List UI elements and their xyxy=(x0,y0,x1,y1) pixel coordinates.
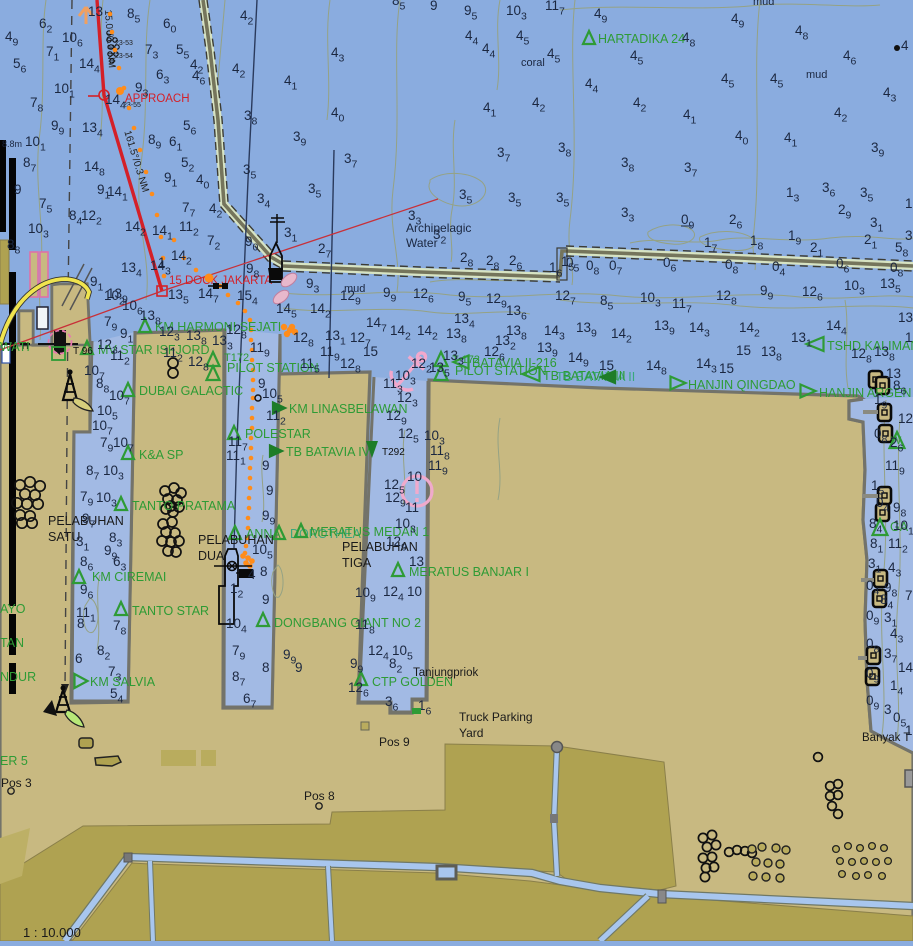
svg-text:KM SALVIA: KM SALVIA xyxy=(90,675,156,689)
svg-text:Yard: Yard xyxy=(459,726,483,740)
svg-text:coral: coral xyxy=(521,57,545,69)
svg-text:1: 1 xyxy=(905,196,913,211)
svg-text:3: 3 xyxy=(884,702,892,717)
svg-text:TANTO PRATAMA: TANTO PRATAMA xyxy=(132,499,236,513)
svg-text:9: 9 xyxy=(295,660,303,675)
svg-text:9: 9 xyxy=(266,483,274,498)
svg-text:23-53: 23-53 xyxy=(115,40,133,47)
svg-text:MERATUS BANJAR I: MERATUS BANJAR I xyxy=(409,565,529,579)
svg-text:TSHD KALIMAN: TSHD KALIMAN xyxy=(827,339,913,353)
svg-text:9: 9 xyxy=(430,0,438,13)
svg-text:K&A SP: K&A SP xyxy=(139,448,183,462)
svg-text:9: 9 xyxy=(14,182,22,197)
svg-text:Pos 9: Pos 9 xyxy=(379,735,410,749)
svg-text:HANJIN QINGDAO: HANJIN QINGDAO xyxy=(688,378,796,392)
svg-text:TB BATAVIA IV: TB BATAVIA IV xyxy=(286,445,371,459)
svg-text:13: 13 xyxy=(905,330,913,345)
svg-text:DONGBANG GIANT NO 2: DONGBANG GIANT NO 2 xyxy=(274,616,421,630)
svg-text:4: 4 xyxy=(901,38,909,53)
svg-text:10: 10 xyxy=(407,584,422,599)
svg-text:8: 8 xyxy=(260,564,268,579)
svg-text:AYO: AYO xyxy=(0,602,26,616)
svg-text:POLESTAR: POLESTAR xyxy=(245,427,311,441)
svg-text:Tanjungpriok: Tanjungpriok xyxy=(413,667,478,679)
svg-text:T292: T292 xyxy=(382,447,405,458)
svg-text:Banyak T: Banyak T xyxy=(862,732,910,744)
svg-text:15: 15 xyxy=(363,344,378,359)
svg-text:10: 10 xyxy=(407,469,422,484)
svg-text:15: 15 xyxy=(736,343,751,358)
svg-text:13: 13 xyxy=(409,554,424,569)
svg-text:DUBAI GALACTIC: DUBAI GALACTIC xyxy=(139,384,243,398)
svg-text:15: 15 xyxy=(719,361,734,376)
svg-text:13: 13 xyxy=(88,4,103,19)
svg-text:KM CIREMAI: KM CIREMAI xyxy=(92,570,166,584)
svg-text:HARTADIKA 24: HARTADIKA 24 xyxy=(598,32,685,46)
svg-text:TAN: TAN xyxy=(0,636,24,650)
svg-text:8: 8 xyxy=(77,616,85,631)
svg-text:12: 12 xyxy=(898,411,913,426)
svg-text:mud: mud xyxy=(753,0,774,8)
svg-text:8: 8 xyxy=(262,660,270,675)
svg-text:14: 14 xyxy=(898,660,913,675)
svg-text:9: 9 xyxy=(262,458,270,473)
svg-text:11: 11 xyxy=(405,500,419,515)
svg-text:ER 5: ER 5 xyxy=(0,754,28,768)
svg-text:1: 1 xyxy=(905,723,913,738)
svg-text:TIGA: TIGA xyxy=(342,556,372,570)
svg-text:4: 4 xyxy=(248,567,256,582)
svg-text:NDUR: NDUR xyxy=(0,670,36,684)
svg-text:T 96: T 96 xyxy=(73,346,93,357)
svg-text:DUA: DUA xyxy=(198,549,225,563)
svg-text:8.8m: 8.8m xyxy=(2,139,22,149)
svg-text:Pos 3: Pos 3 xyxy=(1,776,32,790)
svg-text:3: 3 xyxy=(905,228,913,243)
svg-text:15: 15 xyxy=(599,358,614,373)
svg-text:TANTO STAR: TANTO STAR xyxy=(132,604,209,618)
svg-text:1 : 10.000: 1 : 10.000 xyxy=(23,925,81,940)
svg-text:6: 6 xyxy=(75,651,83,666)
svg-text:9: 9 xyxy=(262,592,270,607)
svg-text:Pos 8: Pos 8 xyxy=(304,789,335,803)
svg-text:mud: mud xyxy=(806,69,827,81)
svg-text:1: 1 xyxy=(158,255,166,270)
svg-text:7: 7 xyxy=(905,588,913,603)
svg-text:Truck Parking: Truck Parking xyxy=(459,710,533,724)
svg-text:WATI: WATI xyxy=(0,340,30,354)
